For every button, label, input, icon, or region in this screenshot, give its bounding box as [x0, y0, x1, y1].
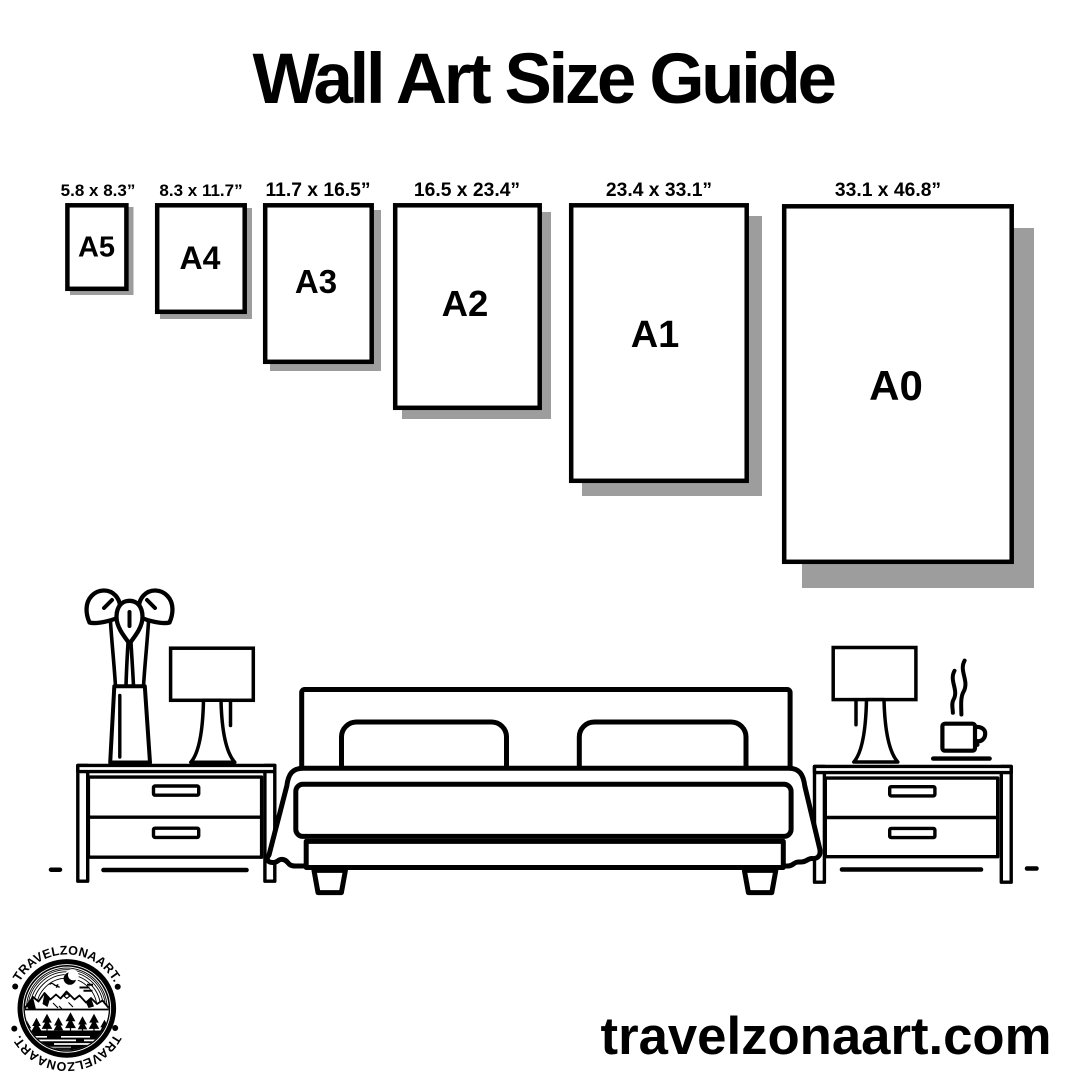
svg-text:travelzonaart.com: travelzonaart.com: [601, 1007, 1052, 1066]
svg-text:5.8 x 8.3”: 5.8 x 8.3”: [61, 181, 136, 200]
svg-text:23.4 x 33.1”: 23.4 x 33.1”: [606, 180, 712, 201]
svg-text:A2: A2: [442, 283, 489, 324]
svg-text:Wall Art Size Guide: Wall Art Size Guide: [252, 40, 835, 119]
svg-text:11.7 x 16.5”: 11.7 x 16.5”: [265, 180, 370, 201]
svg-text:A3: A3: [295, 263, 337, 300]
svg-text:33.1 x 46.8”: 33.1 x 46.8”: [835, 180, 941, 201]
svg-text:16.5 x 23.4”: 16.5 x 23.4”: [414, 180, 520, 201]
svg-text:8.3 x 11.7”: 8.3 x 11.7”: [159, 181, 242, 200]
svg-text:A5: A5: [78, 232, 115, 264]
svg-text:A4: A4: [180, 240, 221, 276]
svg-text:A0: A0: [869, 362, 923, 409]
svg-text:A1: A1: [631, 314, 680, 356]
